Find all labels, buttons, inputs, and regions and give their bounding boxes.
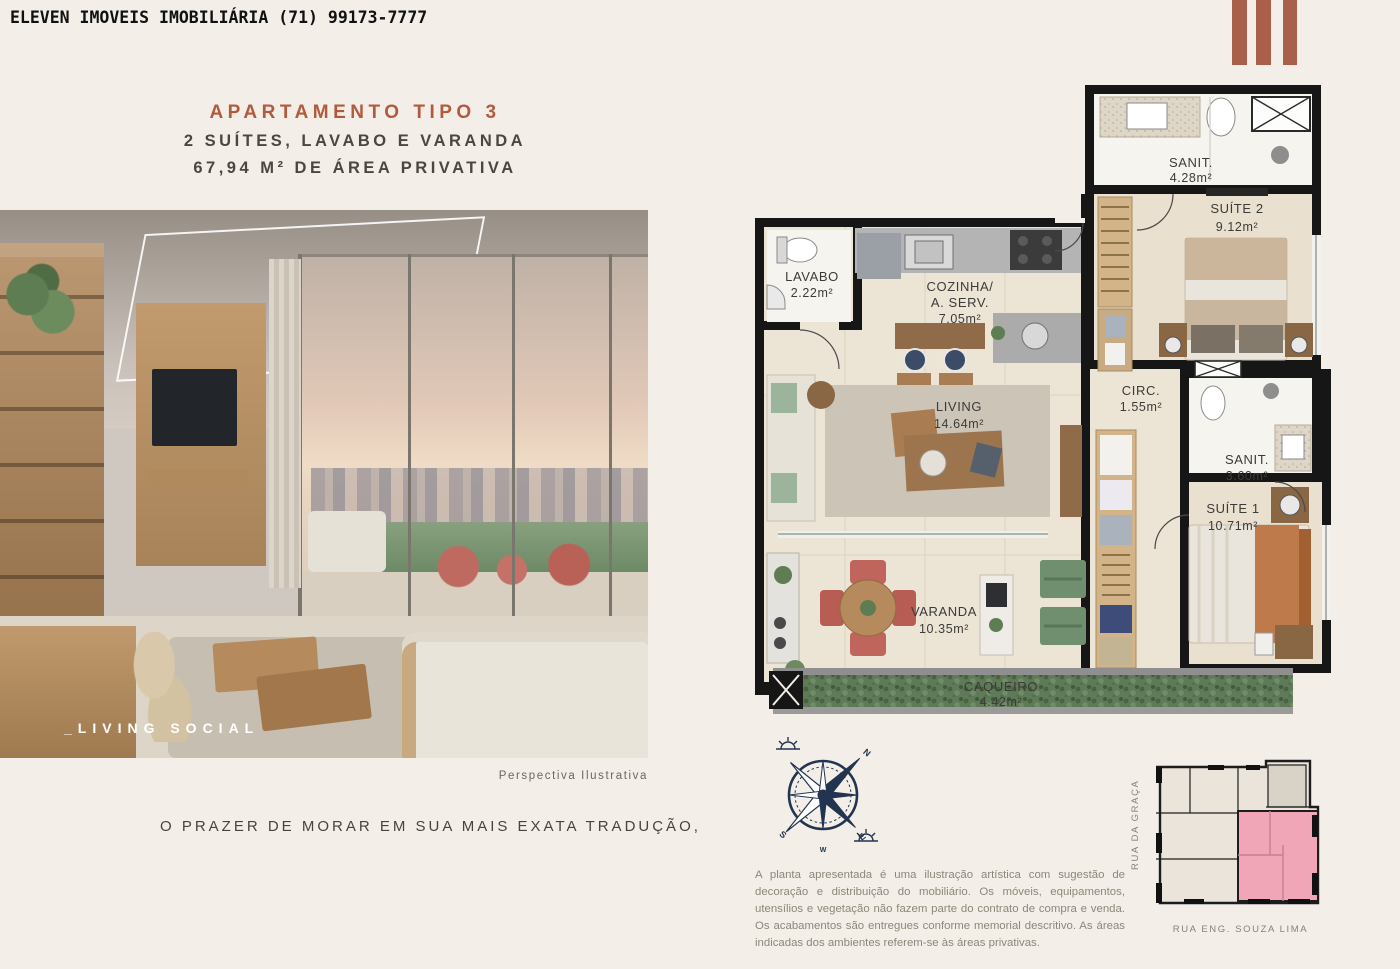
plan-living-furniture <box>767 375 1082 521</box>
area-suite1: 10.71m² <box>1208 519 1258 533</box>
photo-caption: Perspectiva Ilustrativa <box>380 770 648 782</box>
plan-closet <box>1093 427 1137 668</box>
label-circ: CIRC. <box>1122 383 1160 398</box>
photo-desk <box>0 626 136 758</box>
apartment-area: 67,94 M² DE ÁREA PRIVATIVA <box>140 159 570 178</box>
photo-window-mullion-2 <box>512 254 515 638</box>
label-cozinha: COZINHA/ <box>927 279 994 294</box>
street-label-rua-eng-souza-lima: RUA ENG. SOUZA LIMA <box>1148 924 1333 935</box>
area-cozinha: 7.05m² <box>939 312 982 326</box>
agency-header: ELEVEN IMOVEIS IMOBILIÁRIA (71) 99173-77… <box>10 8 427 27</box>
tagline: O PRAZER DE MORAR EM SUA MAIS EXATA TRAD… <box>160 818 701 835</box>
photo-plant <box>6 259 77 347</box>
area-suite2: 9.12m² <box>1216 220 1259 234</box>
label-sanit2: SANIT. <box>1169 155 1213 170</box>
photo-curtain <box>269 259 301 588</box>
building-key-plan <box>1148 755 1333 920</box>
photo-window-frame <box>298 254 648 638</box>
photo-sofa <box>402 632 648 758</box>
compass-n: N <box>861 747 872 759</box>
apartment-subtitle: 2 SUÍTES, LAVABO E VARANDA <box>140 132 570 151</box>
street-label-rua-da-graca: RUA DA GRAÇA <box>1130 800 1144 870</box>
title-block: APARTAMENTO TIPO 3 2 SUÍTES, LAVABO E VA… <box>140 102 570 178</box>
label-lavabo: LAVABO <box>785 269 839 284</box>
photo-tv <box>152 369 236 446</box>
compass-w: W <box>820 847 827 853</box>
photo-window-mullion-1 <box>408 254 411 638</box>
label-aserv: A. SERV. <box>931 295 989 310</box>
floor-plan: LAVABO 2.22m² COZINHA/ A. SERV. 7.05m² S… <box>755 85 1335 730</box>
logo-bar-3 <box>1283 0 1297 65</box>
area-circ: 1.55m² <box>1120 400 1163 414</box>
logo-bar-1 <box>1232 0 1247 65</box>
living-room-photo: _LIVING SOCIAL <box>0 210 648 758</box>
logo-bar-2 <box>1256 0 1271 65</box>
apartment-type-title: APARTAMENTO TIPO 3 <box>140 102 570 124</box>
label-suite2: SUÍTE 2 <box>1210 201 1263 216</box>
compass-s: S <box>777 829 788 841</box>
area-sanit2: 4.28m² <box>1170 171 1213 185</box>
area-varanda: 10.35m² <box>919 622 969 636</box>
area-caqueiro: 4.42m² <box>980 695 1023 709</box>
photo-window-mullion-3 <box>609 254 612 638</box>
compass-rose: N E S W <box>763 733 883 853</box>
label-sanit1: SANIT. <box>1225 452 1269 467</box>
label-living: LIVING <box>936 399 982 414</box>
photo-overlay-label: _LIVING SOCIAL <box>64 720 259 736</box>
area-lavabo: 2.22m² <box>791 286 834 300</box>
label-caqueiro: CAQUEIRO <box>964 679 1038 694</box>
label-suite1: SUÍTE 1 <box>1206 501 1259 516</box>
sunset-icon <box>776 737 800 749</box>
label-varanda: VARANDA <box>911 604 977 619</box>
area-living: 14.64m² <box>934 417 984 431</box>
area-sanit1: 3.60m² <box>1226 469 1269 483</box>
legal-disclaimer: A planta apresentada é uma ilustração ar… <box>755 867 1125 953</box>
photo-tv-shelf <box>146 470 250 488</box>
